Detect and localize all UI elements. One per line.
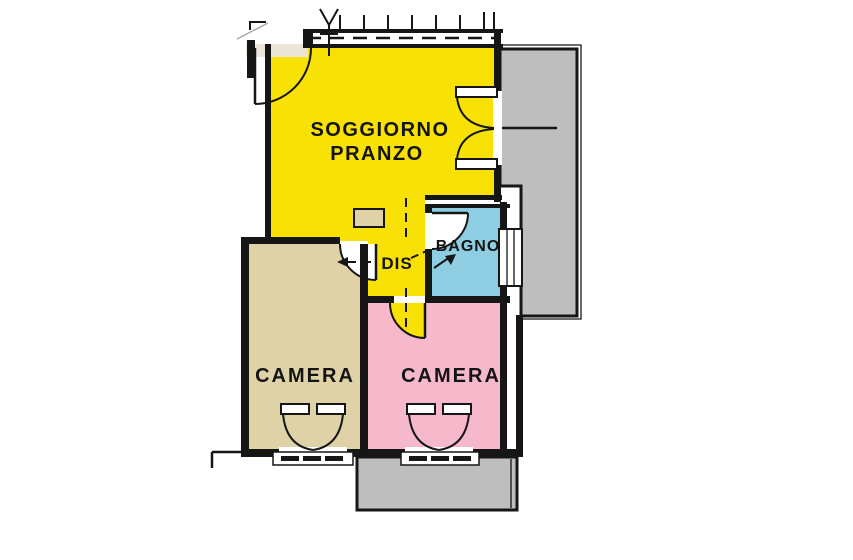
french-door-soggiorno-leaf-top bbox=[456, 87, 497, 97]
window-band-ticks bbox=[340, 12, 494, 29]
french-door-camera-left-leaf-1 bbox=[281, 404, 309, 414]
french-door-camera-right-leaf-2 bbox=[443, 404, 471, 414]
label-camera-left: CAMERA bbox=[255, 365, 355, 387]
wall-stub-bottom-left bbox=[212, 452, 242, 468]
french-door-camera-left-leaf-2 bbox=[317, 404, 345, 414]
label-camera-right: CAMERA bbox=[401, 365, 501, 387]
label-pranzo: PRANZO bbox=[330, 143, 423, 165]
window-bagno bbox=[499, 229, 522, 286]
floor-plan: SOGGIORNO PRANZO DIS BAGNO CAMERA CAMERA bbox=[0, 0, 853, 560]
wall-pilaster bbox=[354, 209, 384, 227]
label-soggiorno: SOGGIORNO bbox=[310, 119, 449, 141]
label-bagno: BAGNO bbox=[436, 238, 501, 255]
french-door-soggiorno-opening bbox=[493, 91, 502, 165]
landing-step-line bbox=[237, 23, 268, 39]
french-door-soggiorno-leaf-bottom bbox=[456, 159, 497, 169]
floor-plan-page: SOGGIORNO PRANZO DIS BAGNO CAMERA CAMERA bbox=[0, 0, 853, 560]
window-bagno-frame bbox=[499, 229, 522, 286]
french-door-camera-right-leaf-1 bbox=[407, 404, 435, 414]
label-dis: DIS bbox=[381, 254, 412, 273]
